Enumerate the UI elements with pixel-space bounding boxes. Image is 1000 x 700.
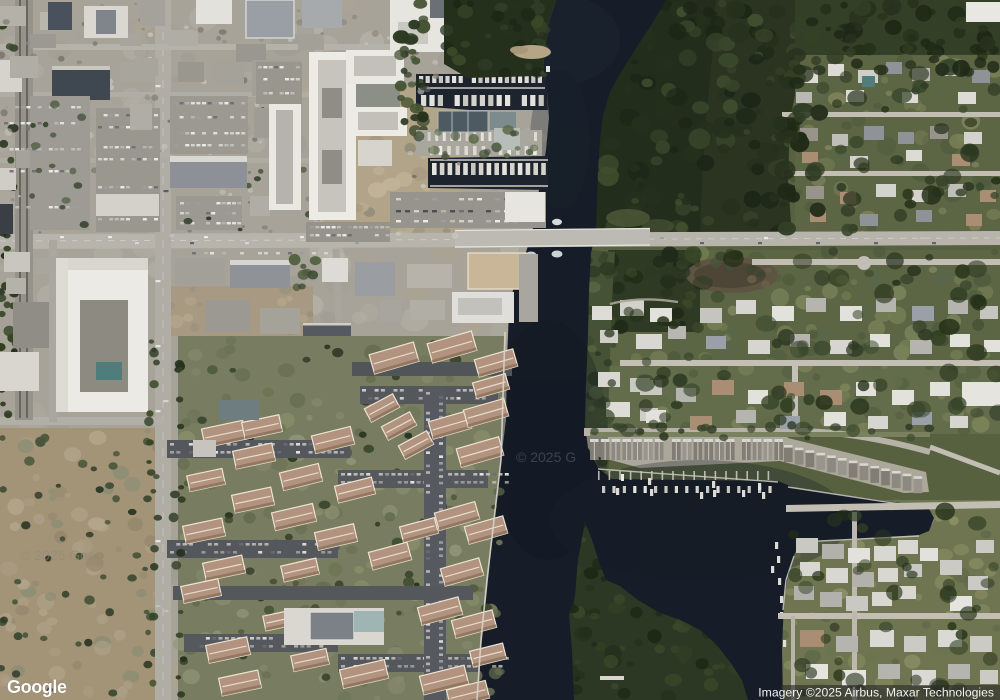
svg-text:© 2025 G: © 2025 G <box>516 449 576 465</box>
svg-text:Imagery ©2025 Airbus, Maxar Te: Imagery ©2025 Airbus, Maxar Technologies <box>758 686 994 700</box>
svg-text:© 2025 Goog: © 2025 Goog <box>20 547 104 563</box>
svg-text:Google: Google <box>7 677 67 697</box>
